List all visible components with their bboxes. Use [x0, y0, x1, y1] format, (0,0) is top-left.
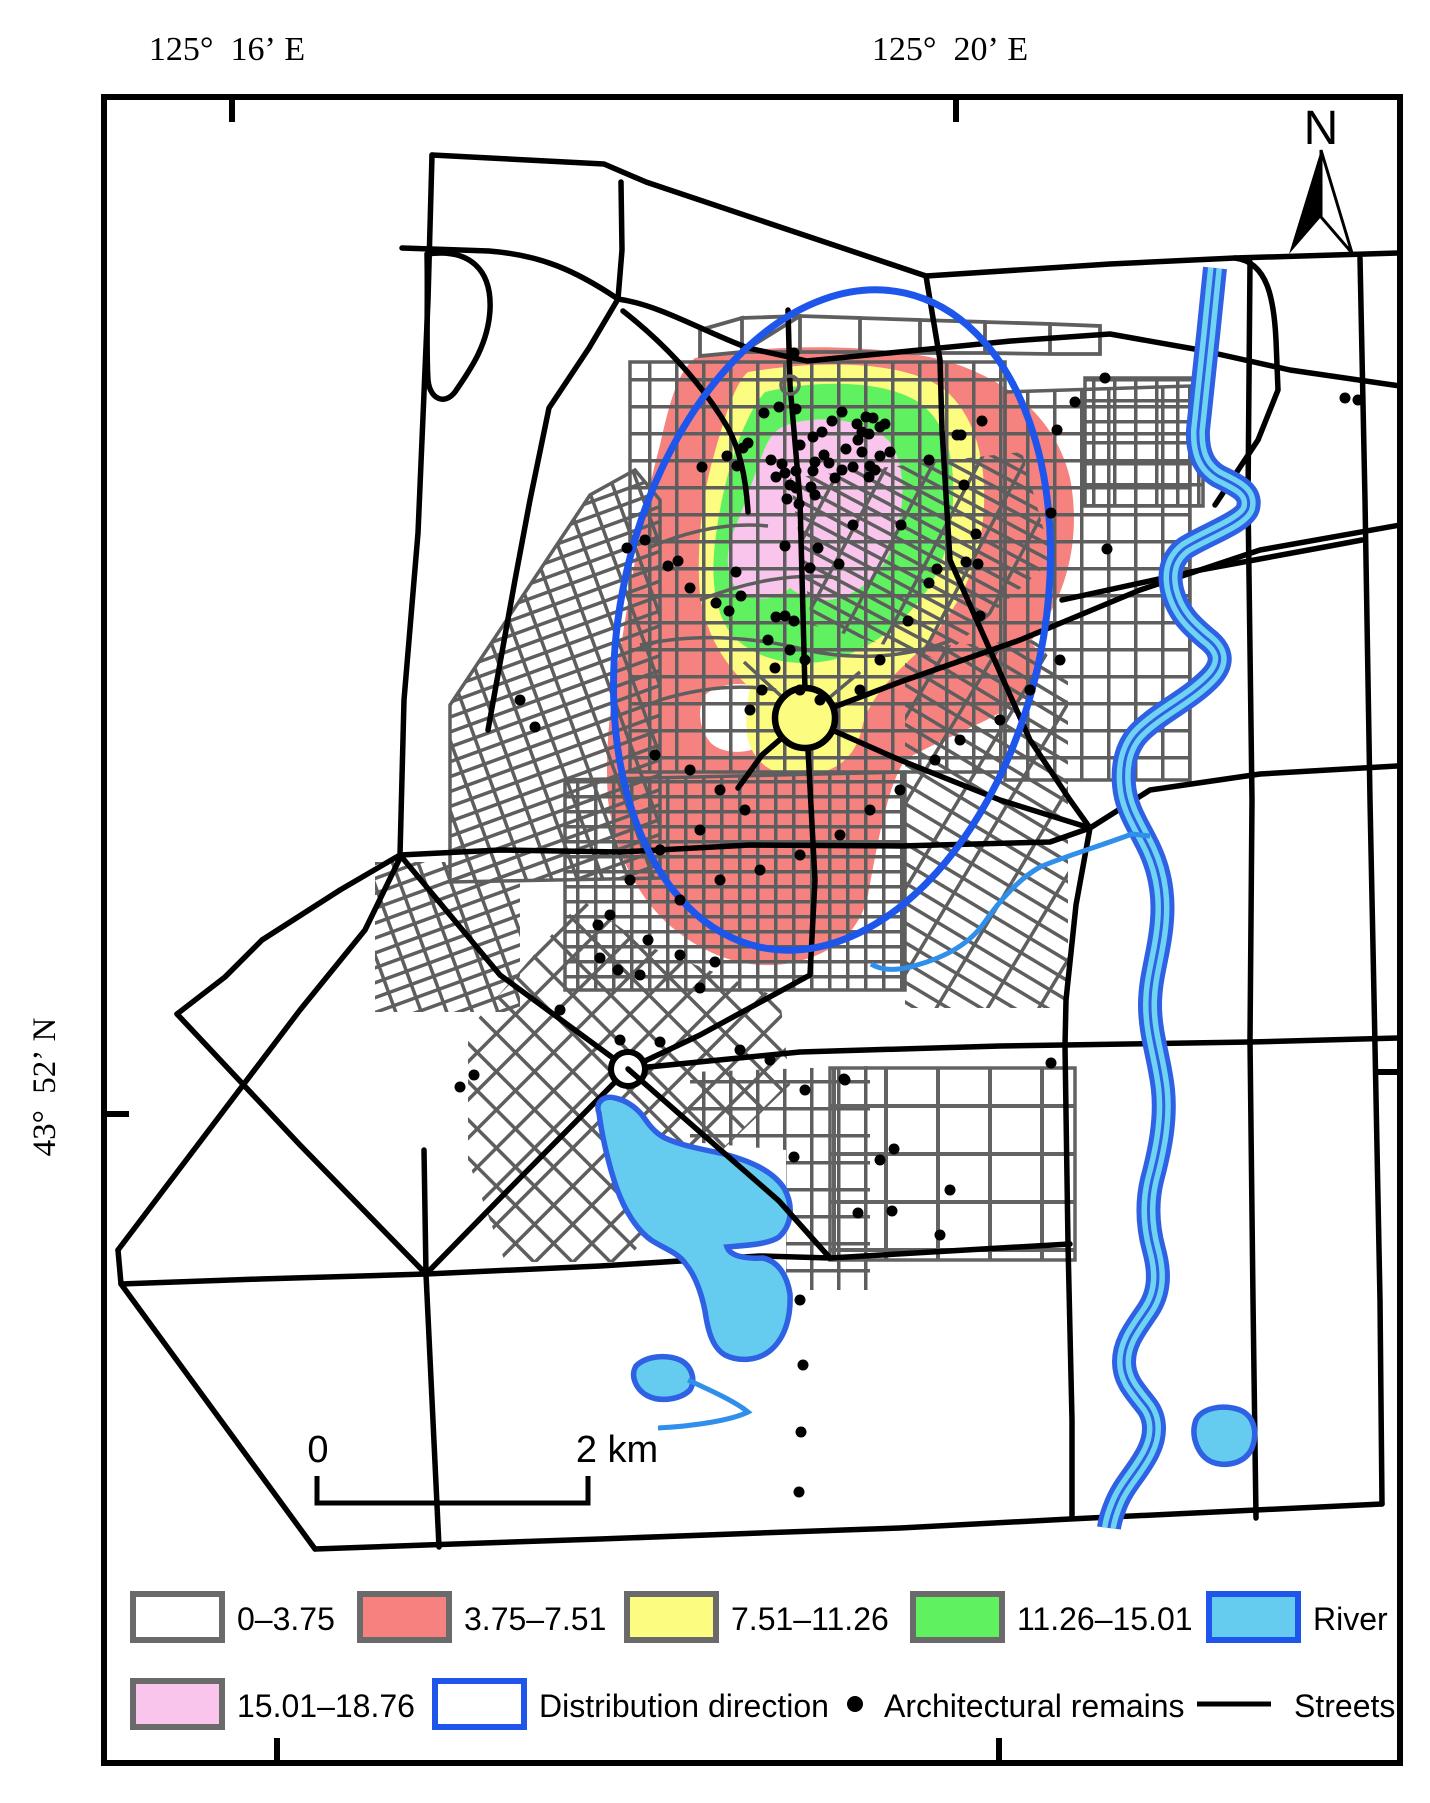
svg-text:7.51–11.26: 7.51–11.26 [731, 1601, 889, 1637]
svg-text:2 km: 2 km [576, 1429, 658, 1471]
svg-text:River: River [1313, 1601, 1388, 1637]
svg-text:11.26–15.01: 11.26–15.01 [1017, 1601, 1193, 1637]
svg-text:Distribution direction: Distribution direction [539, 1688, 829, 1724]
svg-text:3.75–7.51: 3.75–7.51 [464, 1601, 606, 1637]
svg-text:0–3.75: 0–3.75 [237, 1601, 335, 1637]
svg-text:0: 0 [307, 1429, 328, 1471]
svg-text:15.01–18.76: 15.01–18.76 [237, 1688, 415, 1724]
svg-text:43° 52’ N: 43° 52’ N [27, 1017, 63, 1156]
svg-text:125° 16’ E: 125° 16’ E [149, 31, 305, 68]
svg-text:N: N [1304, 102, 1339, 155]
svg-text:Architectural remains: Architectural remains [884, 1688, 1185, 1724]
svg-text:125° 20’ E: 125° 20’ E [872, 31, 1028, 68]
svg-text:Streets: Streets [1294, 1688, 1395, 1724]
